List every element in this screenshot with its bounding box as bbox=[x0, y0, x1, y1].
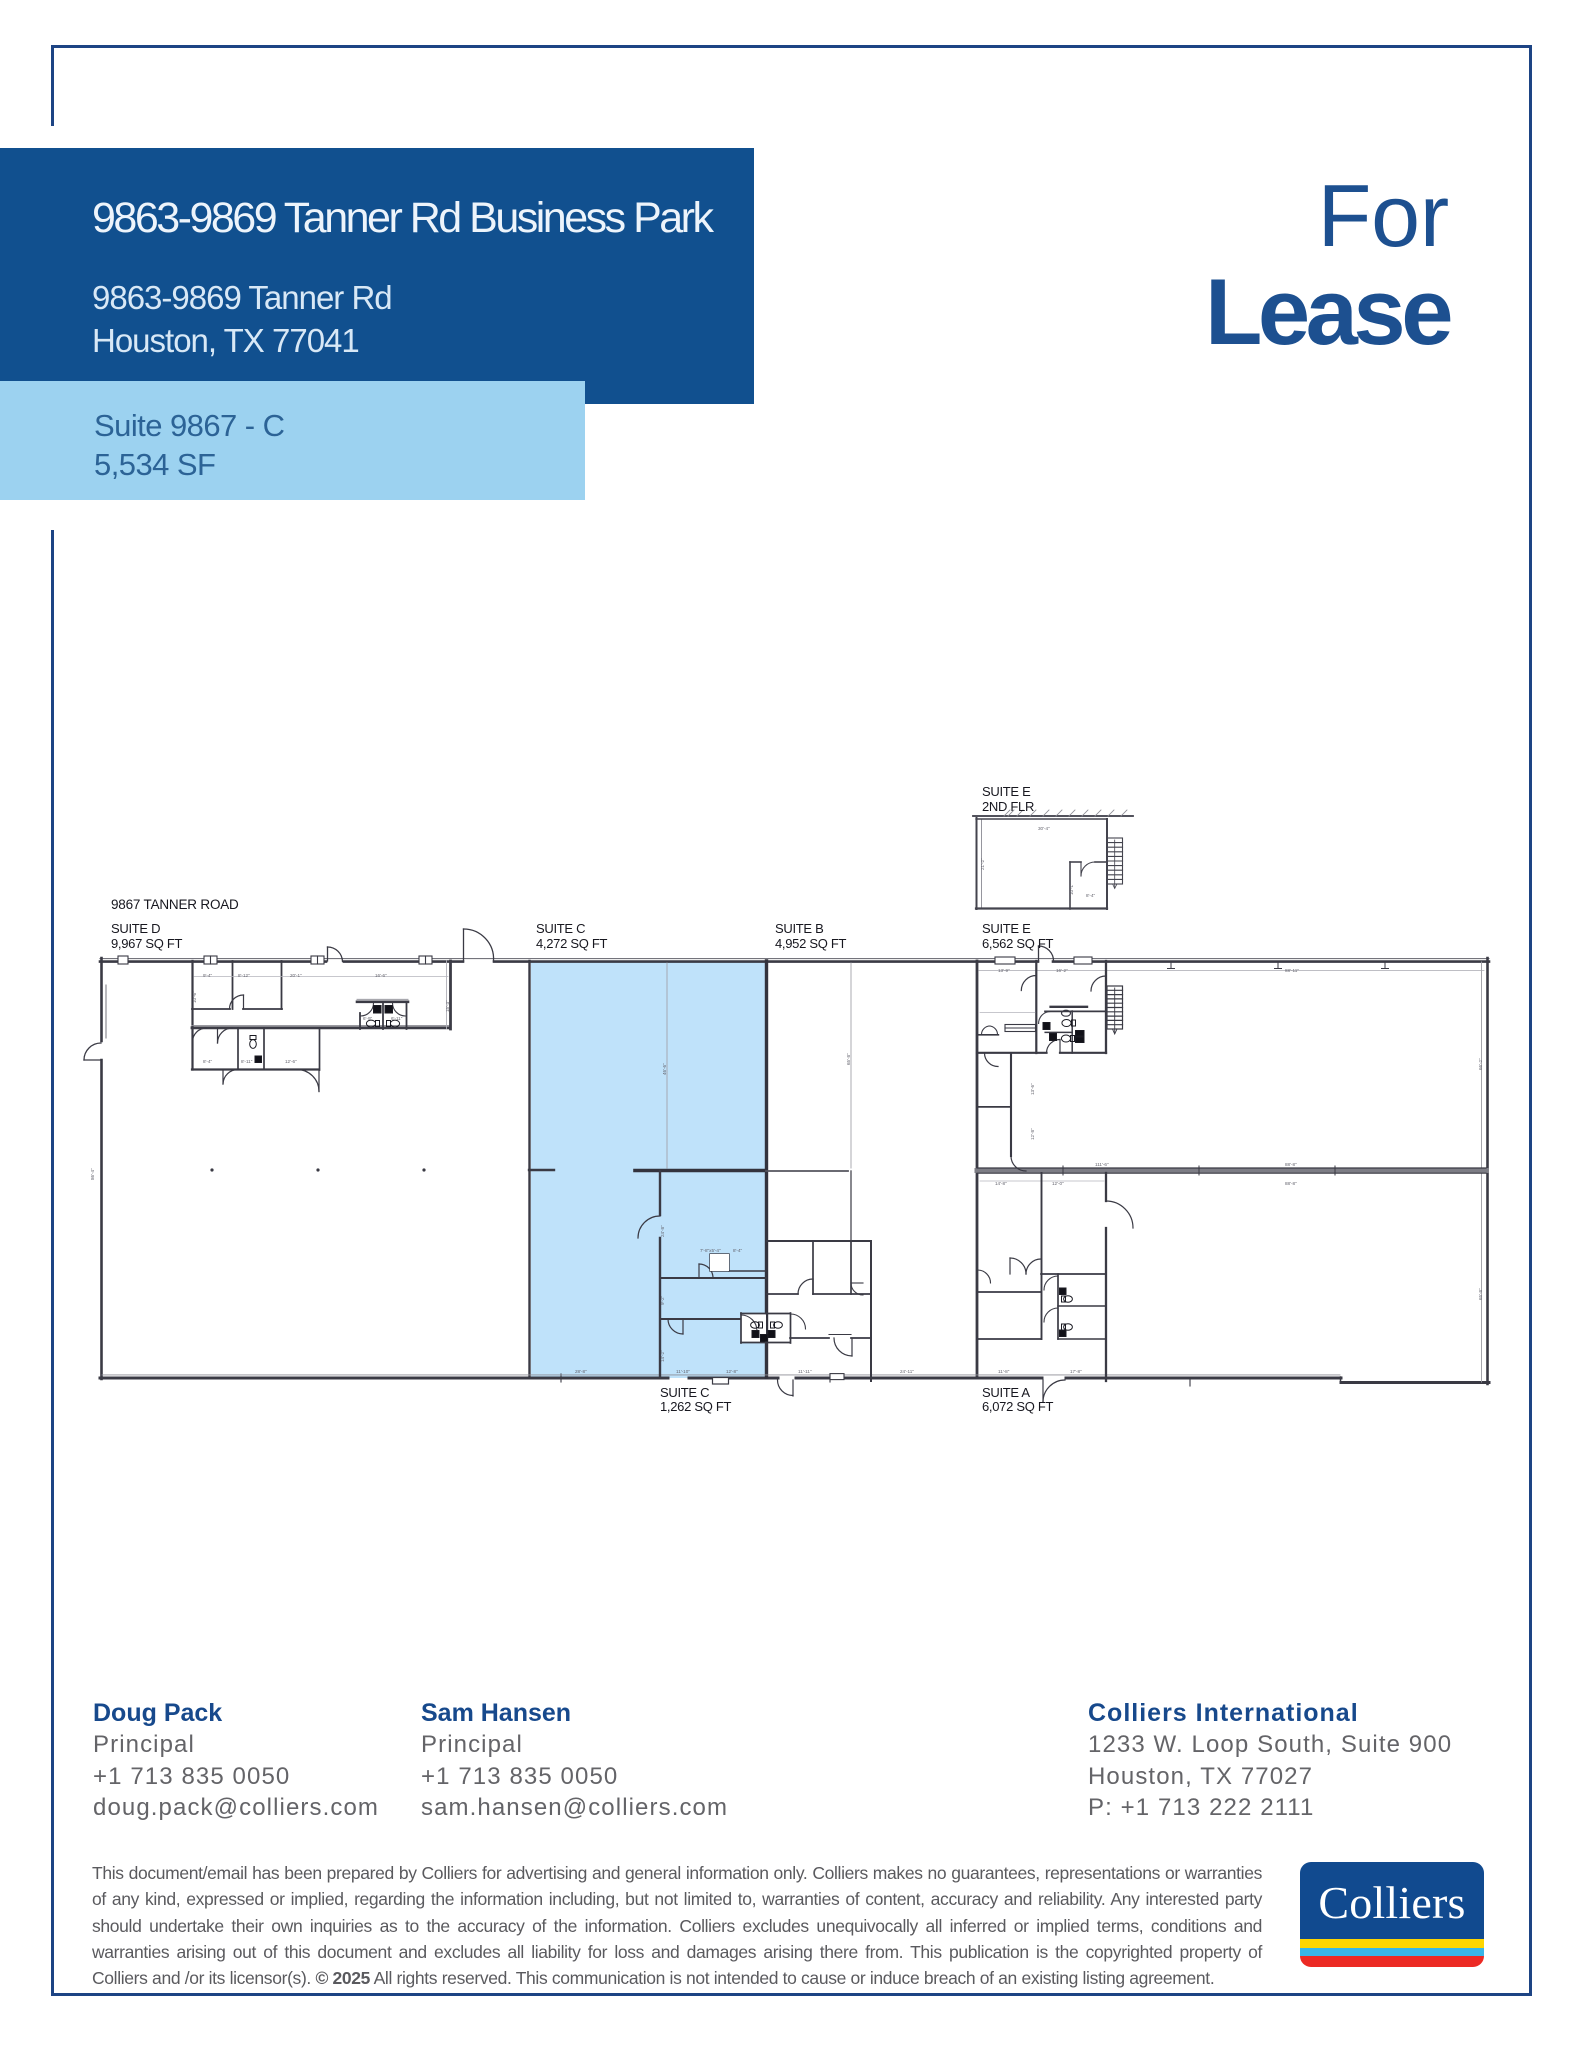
svg-text:30'-4": 30'-4" bbox=[1038, 826, 1050, 831]
svg-text:SUITE C: SUITE C bbox=[536, 921, 585, 936]
svg-text:6,562 SQ FT: 6,562 SQ FT bbox=[982, 936, 1053, 951]
svg-text:66'-2": 66'-2" bbox=[1478, 1058, 1483, 1070]
svg-text:SUITE E: SUITE E bbox=[982, 784, 1031, 799]
svg-text:14'-8": 14'-8" bbox=[995, 1181, 1007, 1186]
svg-text:2ND FLR: 2ND FLR bbox=[982, 799, 1034, 814]
svg-text:8'-4": 8'-4" bbox=[203, 1059, 213, 1064]
svg-text:7'-8"x5'-4": 7'-8"x5'-4" bbox=[700, 1248, 721, 1253]
svg-text:12'-8": 12'-8" bbox=[1030, 1128, 1035, 1140]
svg-text:111'-6": 111'-6" bbox=[1095, 1162, 1109, 1167]
svg-text:SUITE D: SUITE D bbox=[111, 921, 160, 936]
svg-text:8'-4": 8'-4" bbox=[733, 1248, 743, 1253]
svg-text:11'-8": 11'-8" bbox=[998, 1369, 1010, 1374]
svg-text:11'-10": 11'-10" bbox=[676, 1369, 690, 1374]
svg-text:6'-9": 6'-9" bbox=[363, 1016, 373, 1021]
svg-text:13'-9": 13'-9" bbox=[998, 968, 1010, 973]
svg-text:21'-2": 21'-2" bbox=[980, 858, 985, 870]
svg-text:17'-8": 17'-8" bbox=[1070, 1369, 1082, 1374]
svg-text:46'-6": 46'-6" bbox=[662, 1063, 667, 1075]
svg-text:88'-11": 88'-11" bbox=[1285, 968, 1299, 973]
svg-text:10'-6": 10'-6" bbox=[192, 991, 197, 1003]
svg-text:88'-8": 88'-8" bbox=[1285, 1181, 1297, 1186]
svg-text:16'-2": 16'-2" bbox=[1056, 968, 1068, 973]
svg-text:SUITE E: SUITE E bbox=[982, 921, 1031, 936]
svg-text:SUITE B: SUITE B bbox=[775, 921, 823, 936]
svg-text:4,272 SQ FT: 4,272 SQ FT bbox=[536, 936, 607, 951]
svg-text:15'-3": 15'-3" bbox=[445, 1000, 450, 1012]
svg-text:SUITE C: SUITE C bbox=[660, 1385, 709, 1400]
svg-text:10'-1": 10'-1" bbox=[1069, 883, 1074, 895]
svg-text:1,262 SQ FT: 1,262 SQ FT bbox=[660, 1399, 731, 1414]
svg-text:12'-0": 12'-0" bbox=[1052, 1181, 1064, 1186]
svg-text:8'-4": 8'-4" bbox=[1086, 893, 1096, 898]
svg-text:12'-6": 12'-6" bbox=[285, 1059, 297, 1064]
svg-text:8'-11": 8'-11" bbox=[241, 1059, 253, 1064]
svg-text:88'-8": 88'-8" bbox=[1285, 1162, 1297, 1167]
svg-text:28'-8": 28'-8" bbox=[575, 1369, 587, 1374]
svg-text:4,952 SQ FT: 4,952 SQ FT bbox=[775, 936, 846, 951]
svg-text:24'-11": 24'-11" bbox=[900, 1369, 914, 1374]
svg-text:13'-6": 13'-6" bbox=[1030, 1083, 1035, 1095]
svg-text:65'-8": 65'-8" bbox=[1478, 1288, 1483, 1300]
svg-text:9867 TANNER ROAD: 9867 TANNER ROAD bbox=[111, 897, 239, 912]
svg-text:SUITE A: SUITE A bbox=[982, 1385, 1030, 1400]
svg-text:9,967 SQ FT: 9,967 SQ FT bbox=[111, 936, 182, 951]
svg-text:6'-11": 6'-11" bbox=[391, 1016, 403, 1021]
svg-text:8'-12": 8'-12" bbox=[238, 973, 250, 978]
svg-text:9'-2": 9'-2" bbox=[660, 1295, 665, 1305]
svg-text:11'-11": 11'-11" bbox=[798, 1369, 812, 1374]
svg-text:65'-8": 65'-8" bbox=[846, 1053, 851, 1065]
svg-text:86'-4": 86'-4" bbox=[90, 1168, 95, 1180]
svg-text:14'-2": 14'-2" bbox=[660, 1350, 665, 1362]
svg-text:16'-6": 16'-6" bbox=[375, 973, 387, 978]
svg-text:6,072 SQ FT: 6,072 SQ FT bbox=[982, 1399, 1053, 1414]
svg-text:9'-4": 9'-4" bbox=[203, 973, 213, 978]
svg-text:20'-1": 20'-1" bbox=[290, 973, 302, 978]
svg-text:12'-8": 12'-8" bbox=[726, 1369, 738, 1374]
svg-text:24'-8": 24'-8" bbox=[660, 1225, 665, 1237]
